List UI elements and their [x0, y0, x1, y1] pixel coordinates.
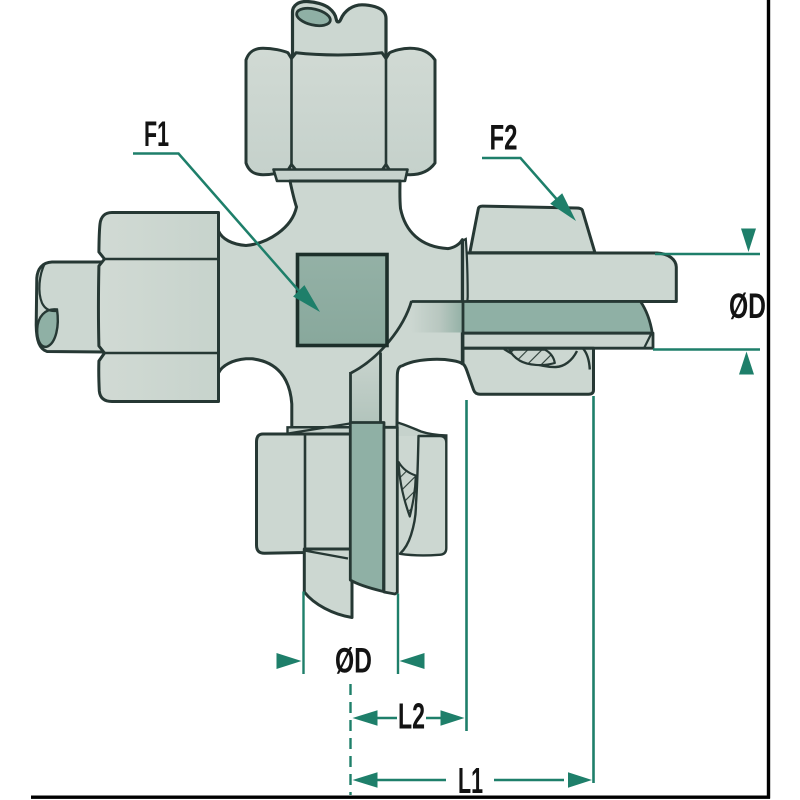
svg-text:F1: F1: [144, 115, 169, 154]
svg-text:F2: F2: [490, 119, 518, 158]
svg-text:ØD: ØD: [335, 642, 372, 681]
svg-text:L1: L1: [458, 760, 483, 800]
svg-text:ØD: ØD: [729, 287, 766, 326]
svg-text:L2: L2: [398, 696, 425, 737]
